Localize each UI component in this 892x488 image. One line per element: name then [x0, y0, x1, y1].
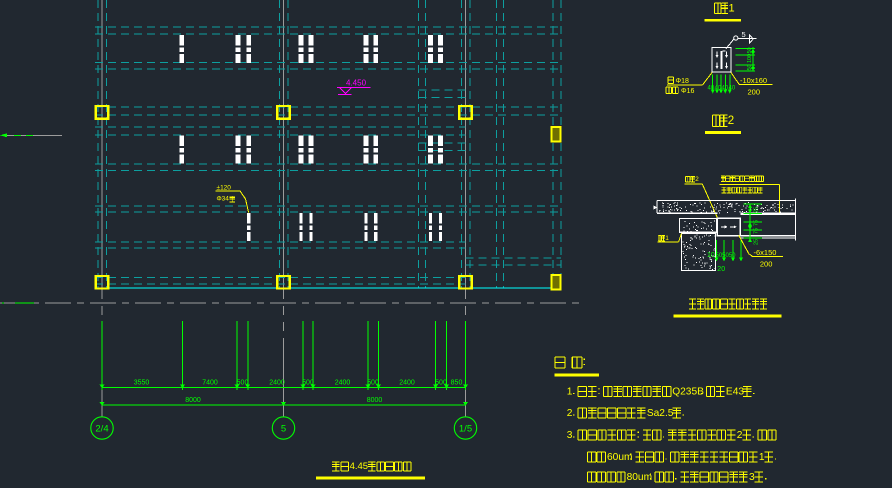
svg-text:Φ16: Φ16	[681, 88, 694, 95]
svg-text:505050: 505050	[716, 253, 737, 259]
svg-text:Q235B: Q235B	[672, 387, 704, 398]
svg-text:2: 2	[567, 408, 573, 419]
svg-text:500: 500	[435, 379, 447, 386]
svg-text:5: 5	[742, 30, 746, 39]
svg-text:500: 500	[237, 379, 249, 386]
svg-text:1: 1	[665, 235, 669, 242]
svg-text:10: 10	[707, 252, 715, 259]
svg-text:4.45: 4.45	[350, 461, 369, 472]
svg-text:200: 200	[748, 88, 761, 97]
svg-text:2400: 2400	[269, 379, 285, 386]
svg-text:100: 100	[747, 54, 753, 63]
svg-text:Φ34: Φ34	[217, 196, 230, 203]
svg-text:75: 75	[754, 220, 760, 226]
svg-text:8000: 8000	[367, 397, 383, 404]
svg-text:E43: E43	[726, 387, 744, 398]
svg-text:80um: 80um	[627, 472, 652, 483]
svg-text:500: 500	[302, 379, 314, 386]
svg-text:3: 3	[749, 472, 755, 483]
svg-text:850: 850	[451, 379, 463, 386]
svg-text:Φ18: Φ18	[676, 78, 689, 85]
svg-text:50: 50	[747, 64, 753, 70]
svg-text:500: 500	[367, 379, 379, 386]
svg-text:2: 2	[737, 430, 743, 441]
svg-text:60um: 60um	[607, 452, 632, 463]
svg-text:2: 2	[695, 176, 699, 183]
svg-text:1: 1	[729, 2, 735, 14]
svg-text:2400: 2400	[335, 379, 351, 386]
svg-text:3550: 3550	[134, 379, 150, 386]
svg-text:200: 200	[760, 260, 773, 269]
svg-text:2/4: 2/4	[95, 424, 108, 435]
svg-text:5: 5	[281, 424, 286, 435]
svg-text:40: 40	[729, 86, 736, 92]
svg-text:Sa2.5: Sa2.5	[647, 408, 674, 419]
svg-text:7400: 7400	[202, 379, 218, 386]
svg-text:50: 50	[747, 47, 753, 53]
svg-text:25: 25	[754, 239, 760, 245]
svg-text:±120: ±120	[217, 184, 232, 191]
svg-text:-6x150: -6x150	[754, 248, 777, 257]
svg-text:20: 20	[717, 266, 725, 273]
svg-text:1/5: 1/5	[459, 424, 472, 435]
svg-text:8000: 8000	[185, 397, 201, 404]
svg-text:2: 2	[728, 115, 734, 127]
svg-text:75: 75	[754, 228, 760, 234]
svg-text:25: 25	[754, 207, 760, 213]
svg-text:4.450: 4.450	[346, 79, 367, 88]
svg-text:1: 1	[759, 452, 765, 463]
svg-text:-10x160: -10x160	[740, 76, 767, 85]
svg-text:2400: 2400	[399, 379, 415, 386]
svg-text:3: 3	[567, 430, 573, 441]
svg-text:1: 1	[567, 387, 573, 398]
